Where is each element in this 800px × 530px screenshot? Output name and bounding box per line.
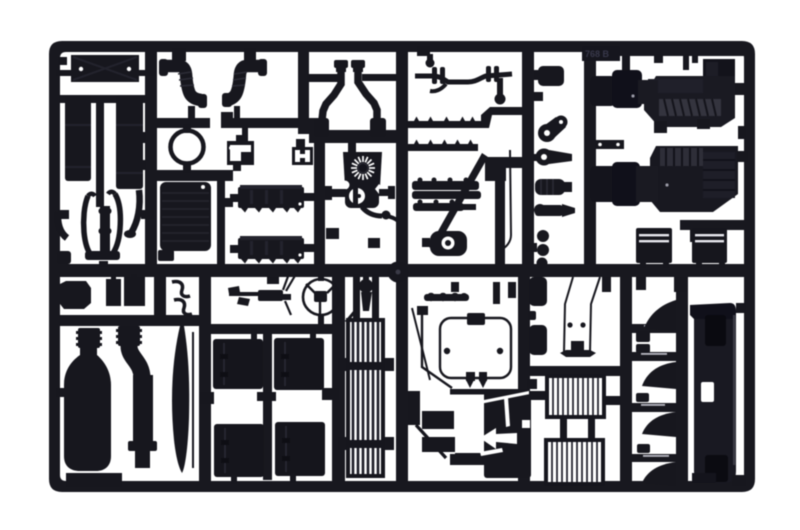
svg-text:768 B: 768 B <box>585 49 610 59</box>
